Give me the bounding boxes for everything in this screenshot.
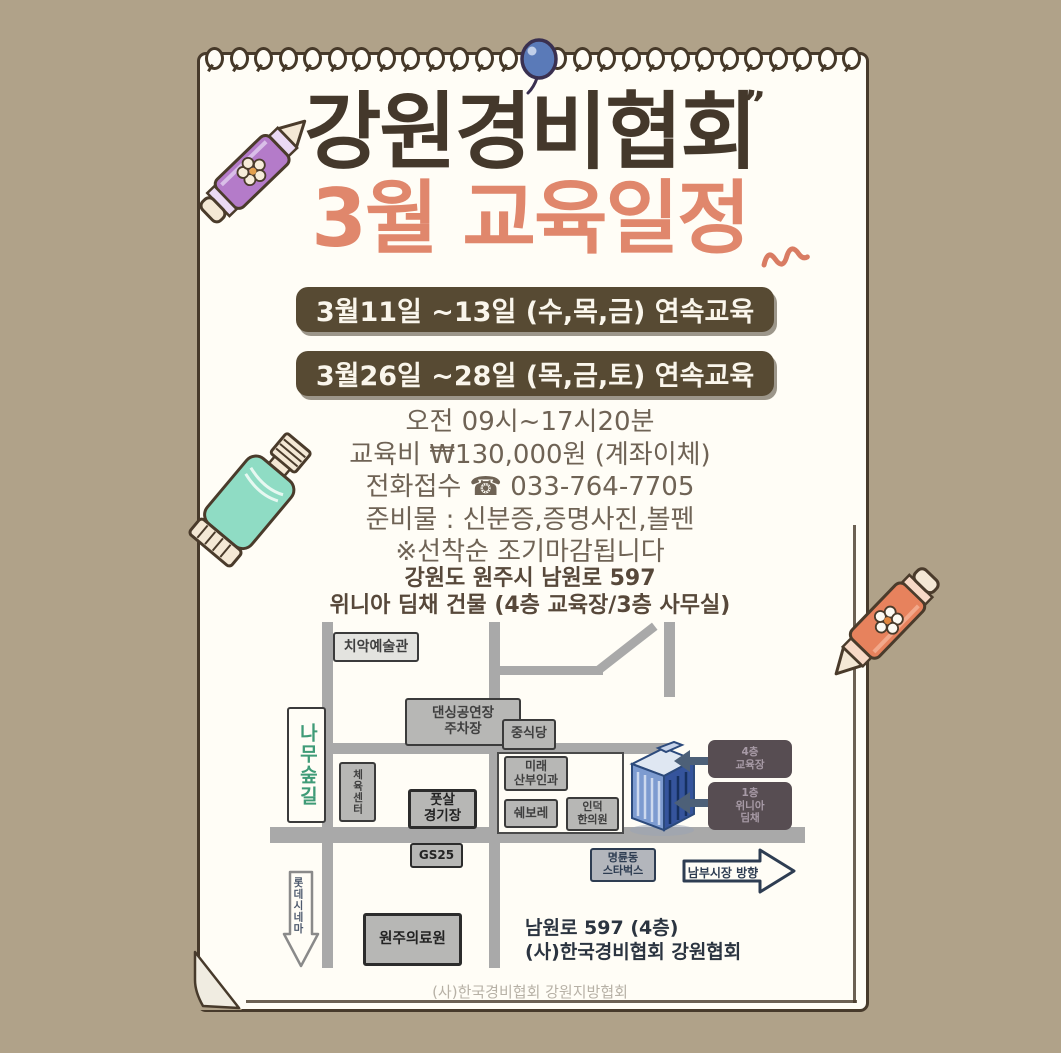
binder-ring-icon bbox=[230, 47, 249, 70]
binder-ring-icon bbox=[793, 47, 812, 70]
binder-ring-icon bbox=[328, 47, 347, 70]
binder-ring-icon bbox=[426, 47, 445, 70]
note-line-2: (사)한국경비협회 강원협회 bbox=[525, 940, 741, 964]
map-location-note: 남원로 597 (4층) (사)한국경비협회 강원협회 bbox=[525, 916, 741, 964]
road-vertical-right-stub bbox=[664, 622, 675, 697]
binder-ring-icon bbox=[401, 47, 420, 70]
binder-ring-icon bbox=[671, 47, 690, 70]
binder-ring-icon bbox=[279, 47, 298, 70]
map-label-obgyn: 미래 산부인과 bbox=[504, 756, 568, 791]
map-label-medical-center: 원주의료원 bbox=[363, 913, 462, 966]
map-label-chiak-art-hall: 치악예술관 bbox=[333, 632, 419, 662]
map-label-namu-forest-road: 나무숲길 bbox=[287, 707, 326, 823]
map-label-clinic: 인덕 한의원 bbox=[566, 797, 619, 831]
binder-ring-icon bbox=[573, 47, 592, 70]
schedule-banner-2: 3월26일 ~28일 (목,금,토) 연속교육 bbox=[296, 351, 774, 396]
binder-ring-icon bbox=[818, 47, 837, 70]
map-label-chevrolet: 쉐보레 bbox=[504, 799, 558, 828]
schedule-banner-1: 3월11일 ~13일 (수,목,금) 연속교육 bbox=[296, 287, 774, 332]
binder-ring-icon bbox=[744, 47, 763, 70]
binder-ring-icon bbox=[720, 47, 739, 70]
binder-ring-icon bbox=[597, 47, 616, 70]
map-label-nambu-market: 남부시장 방향 bbox=[684, 864, 762, 881]
address-line-2: 위니아 딤채 건물 (4층 교육장/3층 사무실) bbox=[197, 592, 863, 619]
note-line-1: 남원로 597 (4층) bbox=[525, 916, 741, 940]
binder-ring-icon bbox=[450, 47, 469, 70]
binder-ring-icon bbox=[303, 47, 322, 70]
cinema-direction-arrow: 롯데시네마 bbox=[282, 870, 320, 970]
purple-crayon-icon bbox=[166, 90, 334, 258]
left-arrow-icon bbox=[674, 750, 710, 772]
map-label-chinese-restaurant: 중식당 bbox=[502, 719, 556, 750]
binder-ring-icon bbox=[622, 47, 641, 70]
building-tag-classroom: 4층 교육장 bbox=[708, 740, 792, 778]
location-map: 치악예술관 댄싱공연장 주차장 중식당 나무숲길 체육센터 미래 산부인과 풋살… bbox=[270, 622, 805, 974]
building-tag-winia: 1층 위니아 딤채 bbox=[708, 782, 792, 830]
paint-tube-icon bbox=[158, 416, 336, 594]
page-curl bbox=[193, 944, 251, 1012]
binder-ring-icon bbox=[377, 47, 396, 70]
binder-ring-icon bbox=[475, 47, 494, 70]
binder-ring-icon bbox=[352, 47, 371, 70]
binder-ring-icon bbox=[646, 47, 665, 70]
map-label-lotte-cinema: 롯데시네마 bbox=[291, 877, 306, 935]
binder-ring-icon bbox=[205, 47, 224, 70]
left-arrow-icon bbox=[674, 792, 710, 814]
binder-ring-icon bbox=[769, 47, 788, 70]
binder-ring-icon bbox=[842, 47, 861, 70]
binder-ring-icon bbox=[254, 47, 273, 70]
map-label-futsal-field: 풋살 경기장 bbox=[408, 789, 477, 829]
road-horizontal-branch bbox=[495, 666, 603, 675]
map-label-gs25: GS25 bbox=[410, 843, 463, 868]
footer-text: (사)한국경비협회 강원지방협회 bbox=[197, 981, 863, 1002]
binder-ring-icon bbox=[695, 47, 714, 70]
poster-background: 강원경비협회 ” 3월 교육일정 3월11일 ~13일 (수,목,금) 연속교육… bbox=[0, 0, 1061, 1053]
map-label-starbucks: 명륜동 스타벅스 bbox=[590, 848, 656, 882]
map-label-sports-center: 체육센터 bbox=[339, 762, 376, 822]
orange-crayon-icon bbox=[804, 530, 978, 704]
market-direction-arrow: 남부시장 방향 bbox=[680, 846, 798, 896]
road-diagonal bbox=[595, 623, 657, 674]
